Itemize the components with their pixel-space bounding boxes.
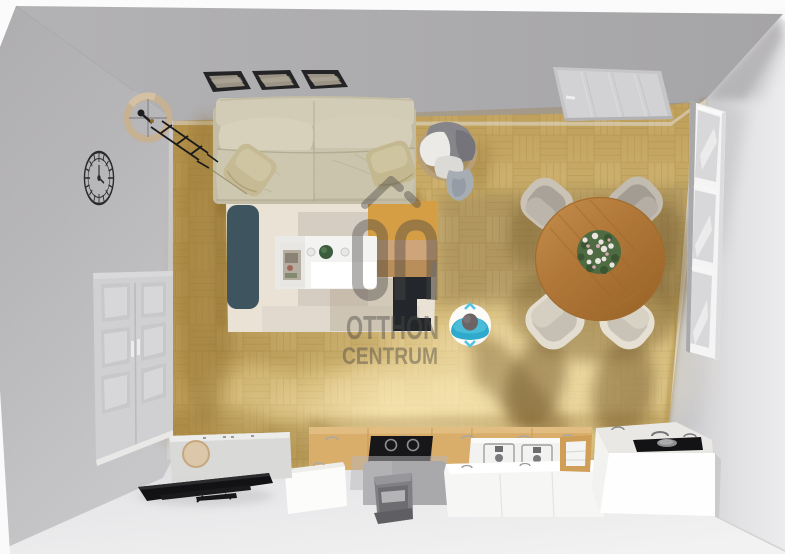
svg-text:OTTHON: OTTHON [346,309,439,346]
svg-text:CENTRUM: CENTRUM [342,343,438,370]
